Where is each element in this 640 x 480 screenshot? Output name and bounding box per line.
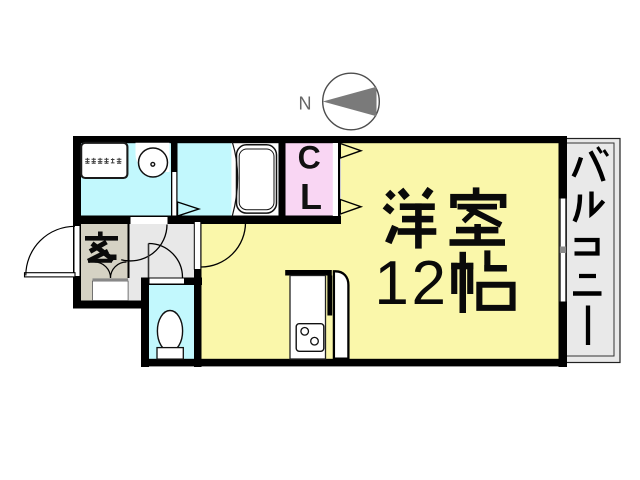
svg-text:2: 2 (411, 249, 445, 318)
svg-text:N: N (299, 94, 312, 114)
svg-text:C: C (298, 140, 321, 176)
svg-text:1: 1 (374, 249, 408, 318)
svg-text:L: L (300, 176, 322, 217)
